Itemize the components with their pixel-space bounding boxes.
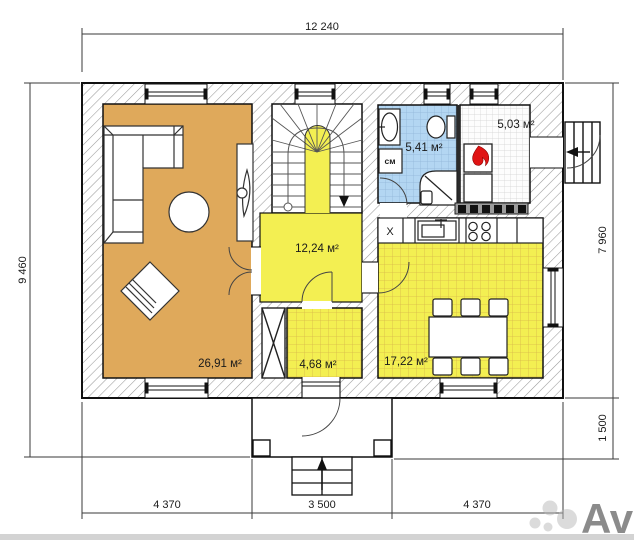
porch-post xyxy=(253,440,270,456)
chair xyxy=(433,299,452,316)
porch xyxy=(252,398,392,495)
window xyxy=(440,378,497,398)
avito-logo-dot xyxy=(544,523,553,532)
window xyxy=(543,268,563,327)
avito-logo-dot xyxy=(557,509,577,529)
sink xyxy=(379,109,400,145)
dim-right-lower-label: 1 500 xyxy=(597,414,609,442)
chair xyxy=(461,299,480,316)
chair xyxy=(489,299,508,316)
dim-bottom-left-label: 4 370 xyxy=(153,499,181,511)
floor-plan-drawing: см X xyxy=(0,0,634,540)
hallway xyxy=(260,213,362,302)
avito-logo-dot xyxy=(530,518,541,529)
counter-strip xyxy=(455,203,528,214)
floor-plan: см X xyxy=(0,0,634,540)
toilet xyxy=(427,116,455,138)
hallway-area-label: 12,24 м² xyxy=(295,243,339,255)
dim-top-label: 12 240 xyxy=(305,21,339,33)
window xyxy=(145,84,207,104)
kitchen-sink xyxy=(418,219,456,240)
dim-bottom-center-label: 3 500 xyxy=(308,499,336,511)
vestibule-area-label: 4,68 м² xyxy=(299,359,336,371)
dim-right-upper-label: 7 960 xyxy=(597,226,609,254)
kitchen-area-label: 17,22 м² xyxy=(384,356,428,368)
chair xyxy=(433,358,452,375)
wardrobe xyxy=(262,308,285,378)
tv-stand xyxy=(237,144,253,241)
avito-logo-dot xyxy=(543,501,558,516)
shower xyxy=(420,171,457,205)
round-table xyxy=(169,192,209,232)
side-entrance xyxy=(565,122,600,183)
avito-watermark: Avito xyxy=(530,495,634,540)
window xyxy=(295,84,335,104)
dining-table xyxy=(429,299,508,375)
kitchen-counter xyxy=(378,218,543,243)
porch-post xyxy=(374,440,391,456)
bottom-edge-band xyxy=(0,534,634,540)
bathroom-area-label: 5,41 м² xyxy=(405,142,442,154)
watermark-text: Avito xyxy=(581,495,634,540)
chair xyxy=(489,358,508,375)
window xyxy=(470,84,498,104)
washer-label: см xyxy=(384,156,395,166)
boiler-area-label: 5,03 м² xyxy=(497,119,534,131)
dim-left-label: 9 460 xyxy=(17,256,29,284)
living-area-label: 26,91 м² xyxy=(198,358,242,370)
window xyxy=(145,378,208,398)
chair xyxy=(461,358,480,375)
dim-bottom-right-label: 4 370 xyxy=(463,499,491,511)
fridge-label: X xyxy=(386,226,394,238)
window xyxy=(424,84,450,104)
